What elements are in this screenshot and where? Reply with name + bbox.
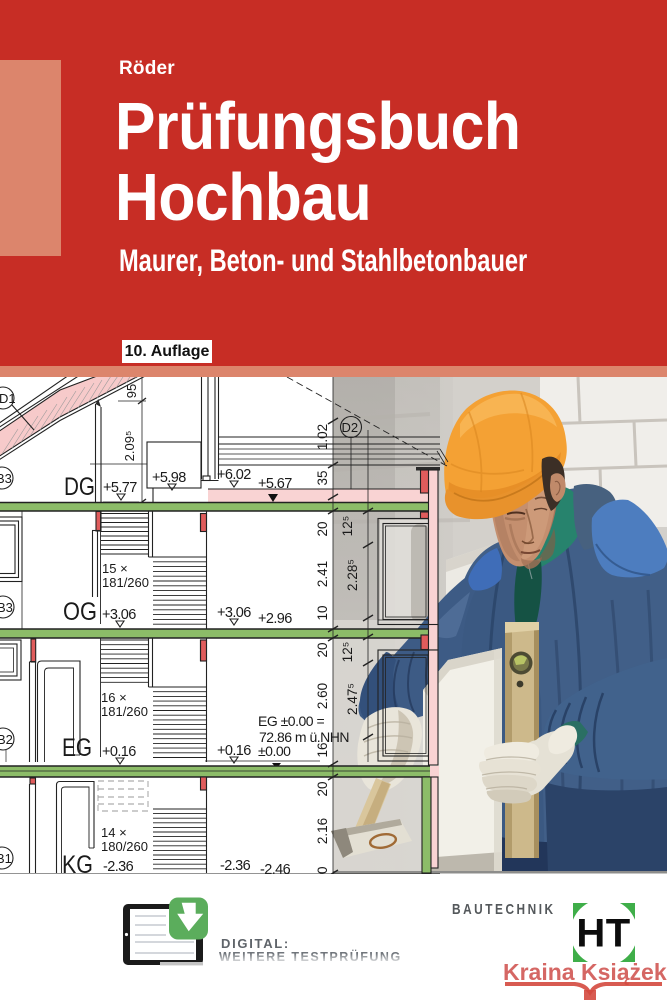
- svg-text:-2.36: -2.36: [103, 859, 134, 875]
- svg-text:12⁵: 12⁵: [340, 642, 355, 663]
- svg-text:10: 10: [315, 605, 330, 620]
- svg-text:D2: D2: [342, 420, 359, 435]
- svg-text:181/260: 181/260: [102, 575, 149, 590]
- svg-text:+2.96: +2.96: [258, 611, 292, 627]
- svg-text:KG: KG: [62, 851, 93, 879]
- svg-text:15 ×: 15 ×: [102, 561, 128, 576]
- svg-text:D1: D1: [0, 391, 16, 406]
- svg-text:14 ×: 14 ×: [101, 825, 127, 840]
- svg-text:EG ±0.00 =: EG ±0.00 =: [258, 713, 324, 729]
- svg-text:180/260: 180/260: [101, 839, 148, 854]
- svg-text:2.41: 2.41: [315, 561, 330, 587]
- svg-text:B1: B1: [0, 851, 12, 866]
- svg-text:HT: HT: [576, 912, 630, 956]
- svg-text:16 ×: 16 ×: [101, 690, 127, 705]
- svg-text:EG: EG: [62, 734, 92, 762]
- svg-text:OG: OG: [63, 598, 97, 626]
- svg-text:2.09⁵: 2.09⁵: [122, 431, 137, 462]
- svg-text:16: 16: [315, 742, 330, 757]
- svg-text:95: 95: [124, 384, 139, 398]
- svg-text:2.47⁵: 2.47⁵: [345, 683, 360, 715]
- svg-text:±0.00: ±0.00: [258, 743, 291, 759]
- svg-text:B3: B3: [0, 471, 12, 486]
- svg-text:2.60: 2.60: [315, 683, 330, 709]
- svg-text:B3: B3: [0, 600, 13, 615]
- svg-text:35: 35: [315, 470, 330, 485]
- svg-text:DG: DG: [64, 473, 95, 501]
- svg-text:20: 20: [315, 521, 330, 536]
- svg-text:20: 20: [315, 642, 330, 657]
- svg-text:2.28⁵: 2.28⁵: [345, 559, 360, 591]
- svg-text:2.16: 2.16: [315, 818, 330, 844]
- svg-text:-2.46: -2.46: [260, 862, 291, 878]
- svg-text:1.02: 1.02: [315, 424, 330, 450]
- svg-text:181/260: 181/260: [101, 704, 148, 719]
- svg-text:-2.36: -2.36: [220, 858, 251, 874]
- svg-text:10: 10: [315, 866, 330, 881]
- svg-text:20: 20: [315, 781, 330, 796]
- svg-text:B2: B2: [0, 732, 13, 747]
- svg-text:12⁵: 12⁵: [340, 516, 355, 537]
